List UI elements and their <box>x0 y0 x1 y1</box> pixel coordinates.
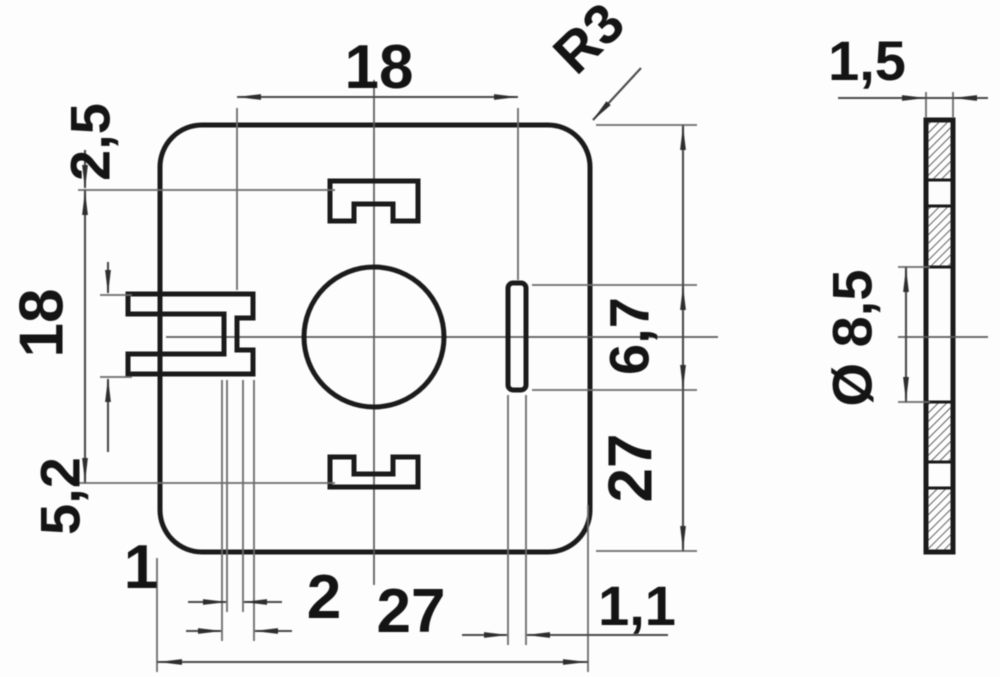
technical-drawing: 18 R3 1,5 2,5 18 5,2 1 2 27 1,1 27 6,7 Ø… <box>0 0 1000 677</box>
radius-leader <box>593 68 641 120</box>
dim-keyway-height-label: 5,2 <box>29 457 92 535</box>
dim-plate-thickness-label: 1,5 <box>828 29 906 92</box>
dim-lug-span-left-label: 18 <box>8 289 77 358</box>
drawing-page: 18 R3 1,5 2,5 18 5,2 1 2 27 1,1 27 6,7 Ø… <box>0 0 1000 677</box>
dim-coding-slot-width-label: 1,1 <box>598 574 676 637</box>
left-keyway <box>128 294 253 374</box>
dim-slot-height-label: 2,5 <box>59 103 122 181</box>
dim-plate-width-label: 27 <box>377 577 446 646</box>
dim-corner-radius-label: R3 <box>541 0 636 85</box>
dim-lug-span-top-label: 18 <box>345 33 414 102</box>
dim-key-width-label: 1 <box>124 533 158 602</box>
dim-coding-slot-height-label: 6,7 <box>598 297 661 375</box>
dim-key-depth-label: 2 <box>307 563 341 632</box>
side-view <box>898 120 988 552</box>
side-hole-edges <box>926 267 953 402</box>
dim-plate-height-label: 27 <box>597 434 666 503</box>
dim-hole-diameter-label: Ø 8,5 <box>821 270 884 407</box>
section-hatching <box>928 122 951 550</box>
